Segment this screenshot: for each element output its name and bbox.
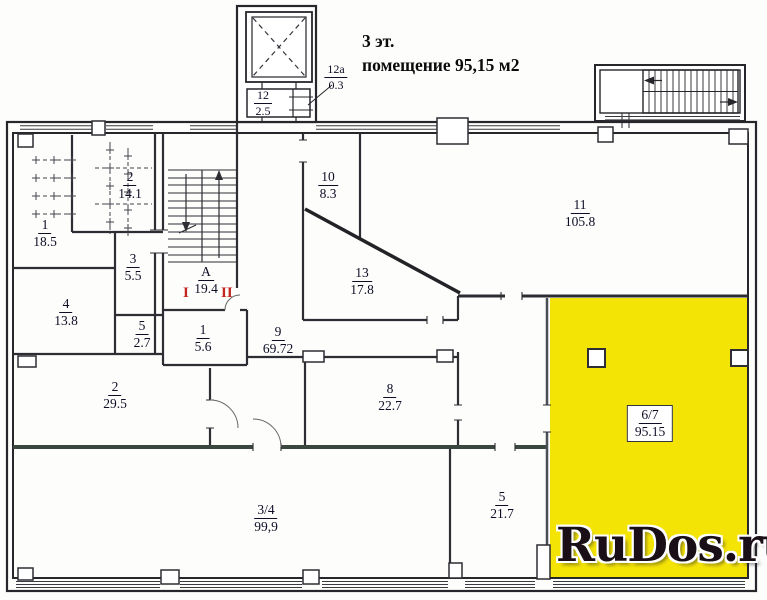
room-label-5-2-7: 52.7 <box>134 318 151 351</box>
room-number: 2 <box>124 169 137 186</box>
stair-mark-I: I <box>183 285 189 302</box>
title-line-1: 3 эт. <box>362 30 519 54</box>
interior-walls <box>13 122 458 578</box>
room-area: 22.7 <box>378 398 402 414</box>
column-right <box>731 350 748 366</box>
room-label-1-18-5: 118.5 <box>33 217 57 250</box>
room-label-3-4-99-9: 3/499,9 <box>254 502 278 535</box>
room-area: 21.7 <box>490 506 514 522</box>
room-label-12a-0-3: 12а0.3 <box>324 62 347 93</box>
room-number: 5 <box>136 318 149 335</box>
room-number: 2 <box>109 379 122 396</box>
room-area: 18.5 <box>33 234 57 250</box>
floor-plan-page: 3 эт. помещение 95,15 м2 118.5 214.1 35.… <box>0 0 767 600</box>
column-left <box>588 349 605 367</box>
room-label-12-2-5: 122.5 <box>254 88 272 119</box>
room-area: 17.8 <box>350 282 374 298</box>
elevator-tower <box>237 6 332 122</box>
room-label-3-5-5: 35.5 <box>125 251 142 284</box>
room-label-13-17-8: 1317.8 <box>350 265 374 298</box>
room-area: 0.3 <box>328 78 343 93</box>
room-area: 19.4 <box>194 281 218 297</box>
room-area: 2.5 <box>256 104 271 119</box>
watermark: RuDos.ru <box>556 518 767 573</box>
room-label-6-7-95-15: 6/795.15 <box>627 405 673 442</box>
room-label-5-21-7: 521.7 <box>490 489 514 522</box>
diagonal-wall <box>305 209 460 293</box>
title-line-2: помещение 95,15 м2 <box>362 54 519 78</box>
room-number: 1 <box>197 322 210 339</box>
room-number: 11 <box>571 197 590 214</box>
bottom-window-band <box>16 582 745 588</box>
external-stair-annex <box>595 65 745 128</box>
room-label-1-5-6: 15.6 <box>195 322 212 355</box>
room-area: 5.5 <box>125 268 142 284</box>
room-number: 12а <box>324 62 347 78</box>
room-number: 13 <box>352 265 372 282</box>
room-label-8-22-7: 822.7 <box>378 381 402 414</box>
room-number: А <box>198 264 214 281</box>
room-area: 29.5 <box>103 396 127 412</box>
door-arcs <box>210 295 281 447</box>
room-number: 9 <box>272 324 285 341</box>
room-area: 99,9 <box>254 519 278 535</box>
room-area: 13.8 <box>54 313 78 329</box>
room-number: 3/4 <box>254 502 277 519</box>
room-number: 12 <box>254 88 272 104</box>
plan-title: 3 эт. помещение 95,15 м2 <box>362 30 519 77</box>
room-number: 4 <box>60 296 73 313</box>
room-area: 105.8 <box>565 214 595 230</box>
room-label-2-14-1: 214.1 <box>118 169 142 202</box>
room-area: 69.72 <box>263 341 293 357</box>
room-number: 10 <box>318 169 338 186</box>
room-number: 5 <box>496 489 509 506</box>
stair-mark-II: II <box>221 285 233 302</box>
room-area: 2.7 <box>134 335 151 351</box>
room-label-4-13-8: 413.8 <box>54 296 78 329</box>
room-area: 5.6 <box>195 339 212 355</box>
room-area: 14.1 <box>118 186 142 202</box>
stair-up-arrow <box>215 170 223 180</box>
room-label-a-19-4: А19.4 <box>194 264 218 297</box>
room-number: 3 <box>127 251 140 268</box>
room-label-10-8-3: 108.3 <box>318 169 338 202</box>
room-number: 8 <box>384 381 397 398</box>
room-label-2-29-5: 229.5 <box>103 379 127 412</box>
room-label-9-69-72: 969.72 <box>263 324 293 357</box>
room-area: 8.3 <box>320 186 337 202</box>
room-number: 1 <box>39 217 52 234</box>
floor-plan-drawing <box>0 0 767 600</box>
room-number: 6/7 <box>638 407 661 424</box>
staircase-a <box>168 170 236 262</box>
room-label-11-105-8: 11105.8 <box>565 197 595 230</box>
room-area: 95.15 <box>635 424 665 440</box>
